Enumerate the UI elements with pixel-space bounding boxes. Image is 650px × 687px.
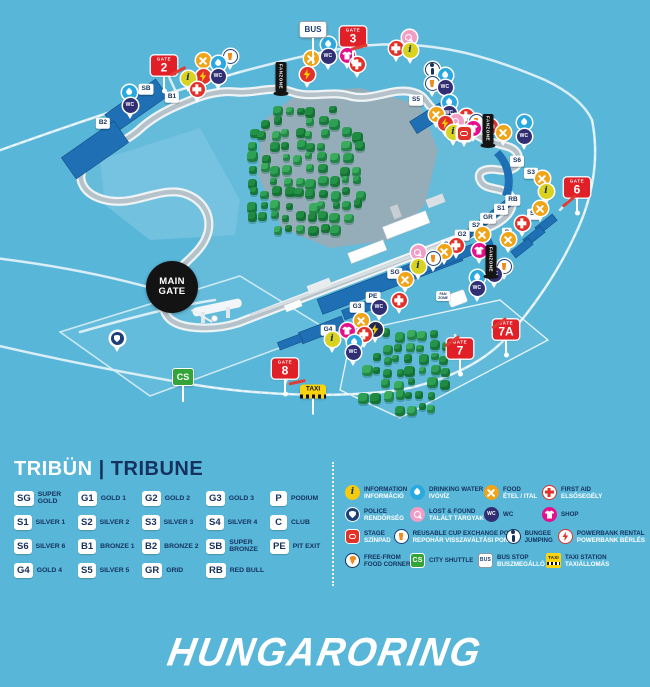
bungee-icon [506, 529, 521, 544]
service-label-hu: BUSZMEGÁLLÓ [497, 561, 545, 568]
tribune-label: BRONZE 2 [164, 543, 204, 550]
tribune-code-badge: B2 [142, 539, 160, 554]
tribune-code-badge: C [270, 515, 287, 530]
tribune-code-badge: G4 [14, 563, 33, 578]
service-item-firstaid_w: FIRST AIDELSŐSEGÉLY [542, 485, 602, 500]
service-label-en: FIRST AID [561, 486, 602, 493]
food-icon [484, 485, 499, 500]
cup-icon [394, 529, 409, 544]
service-label-hu: SZÍNPAD [364, 537, 391, 544]
service-label-en: REUSABLE CUP EXCHANGE POINT [413, 530, 519, 537]
service-label-en: LOST & FOUND [429, 508, 484, 515]
service-label: WC [503, 511, 513, 518]
gate-and-transport-signs: GATE2GATE3GATE6GATE7GATE7AGATE8BUSCSTAXI… [0, 0, 650, 452]
service-label: FREE-FROMFOOD CORNER [364, 554, 410, 568]
tribune-label: GOLD 2 [165, 495, 205, 502]
tribune-item-S3: S3SILVER 3 [142, 514, 206, 530]
legend: TRIBÜN | TRIBUNE SGSUPER GOLDS1SILVER 1S… [0, 452, 650, 620]
service-item-wc: WCWC [484, 507, 542, 522]
tribune-column: SGSUPER GOLDS1SILVER 1S6SILVER 6G4GOLD 4 [14, 490, 78, 578]
tribune-item-G1: G1GOLD 1 [78, 490, 142, 506]
gate-sign-6: GATE6 [564, 178, 590, 216]
tribune-column: G2GOLD 2S3SILVER 3B2BRONZE 2GRGRID [142, 490, 206, 578]
freefrom-icon [345, 553, 360, 568]
service-label-en: INFORMATION [364, 486, 407, 493]
tribune-item-S6: S6SILVER 6 [14, 538, 78, 554]
service-label-hu: ELSŐSEGÉLY [561, 493, 602, 500]
tribune-label: SILVER 5 [100, 567, 140, 574]
tribune-code-badge: S4 [206, 515, 224, 530]
tribune-label: GOLD 1 [101, 495, 141, 502]
tribune-code-badge: G2 [142, 491, 161, 506]
service-label-hu: JUMPING [525, 537, 553, 544]
tribune-code-badge: SG [14, 491, 34, 506]
taxi-sign: TAXI [300, 385, 326, 415]
service-item-taxi: TAXITAXI STATIONTAXIÁLLOMÁS [546, 553, 609, 568]
tribune-code-badge: SB [206, 539, 225, 554]
tribune-code-badge: S1 [14, 515, 32, 530]
service-label: DRINKING WATERIVÓVÍZ [429, 486, 483, 500]
service-item-bungee: BUNGEEJUMPING [506, 529, 558, 544]
service-label-hu: TAXIÁLLOMÁS [565, 561, 609, 568]
service-item-shop: SHOP [542, 507, 579, 522]
services-row: STAGESZÍNPADREUSABLE CUP EXCHANGE POINTR… [345, 529, 645, 544]
service-label: POLICERENDŐRSÉG [364, 508, 404, 522]
tribune-title: TRIBÜN | TRIBUNE [14, 458, 203, 481]
services-row: iINFORMATIONINFORMÁCIÓDRINKING WATERIVÓV… [345, 485, 645, 500]
tribune-label: GRID [166, 567, 206, 574]
footer: HUNGARORING [0, 620, 650, 687]
service-label-hu: ÉTEL / ITAL [503, 493, 537, 500]
service-label-en: STAGE [364, 530, 391, 537]
service-label-en: POLICE [364, 508, 404, 515]
bus-sign: BUS [299, 21, 327, 64]
fanzone-flag: FANZONE [274, 62, 289, 96]
service-item-bus: BUSBUS STOPBUSZMEGÁLLÓ [478, 553, 546, 568]
tribune-label: GOLD 3 [229, 495, 269, 502]
police-icon [345, 507, 360, 522]
firstaid_w-icon [542, 485, 557, 500]
tribune-grid: SGSUPER GOLDS1SILVER 1S6SILVER 6G4GOLD 4… [14, 490, 334, 578]
tribune-code-badge: PE [270, 539, 289, 554]
service-label-en: DRINKING WATER [429, 486, 483, 493]
water-icon [410, 485, 425, 500]
service-label-hu: POWERBANK BÉRLÉS [577, 537, 645, 544]
tribune-label: PODIUM [291, 495, 331, 502]
tribune-code-badge: RB [206, 563, 226, 578]
tribune-item-SB: SBSUPER BRONZE [206, 538, 270, 554]
service-item-powerbank_w: POWERBANK RENTALPOWERBANK BÉRLÉS [558, 529, 645, 544]
tribune-code-badge: S3 [142, 515, 160, 530]
wc-icon: WC [484, 507, 499, 522]
service-label: STAGESZÍNPAD [364, 530, 391, 544]
tribune-item-S5: S5SILVER 5 [78, 562, 142, 578]
service-label-hu: REPOHÁR VISSZAVÁLTÁSI PONT [413, 537, 519, 544]
tribune-label: CLUB [291, 519, 331, 526]
tribune-item-RB: RBRED BULL [206, 562, 270, 578]
service-label-en: BUNGEE [525, 530, 553, 537]
service-label: TAXI STATIONTAXIÁLLOMÁS [565, 554, 609, 568]
service-item-food: FOODÉTEL / ITAL [484, 485, 542, 500]
stage-icon [345, 529, 360, 544]
service-item-water: DRINKING WATERIVÓVÍZ [410, 485, 484, 500]
legend-separator [332, 462, 334, 586]
tribune-label: SILVER 4 [228, 519, 268, 526]
service-label-hu: INFORMÁCIÓ [364, 493, 407, 500]
tribune-label: PIT EXIT [293, 543, 333, 550]
service-label: FOODÉTEL / ITAL [503, 486, 537, 500]
service-label-en: SHOP [561, 511, 579, 518]
lostfound-icon [410, 507, 425, 522]
fanzone-flag: FANZONE [484, 245, 499, 279]
tribune-column: G3GOLD 3S4SILVER 4SBSUPER BRONZERBRED BU… [206, 490, 270, 578]
service-label: FIRST AIDELSŐSEGÉLY [561, 486, 602, 500]
main-gate-marker: MAINGATE [146, 261, 198, 313]
service-item-lostfound: LOST & FOUNDTALÁLT TÁRGYAK [410, 507, 484, 522]
fanzone-flag: FANZONE [481, 114, 496, 148]
service-label-hu: TALÁLT TÁRGYAK [429, 515, 484, 522]
tribune-label: RED BULL [230, 567, 270, 574]
tribune-item-G2: G2GOLD 2 [142, 490, 206, 506]
tribune-code-badge: S6 [14, 539, 32, 554]
bus-icon: BUS [478, 553, 493, 568]
tribune-column: PPODIUMCCLUBPEPIT EXIT [270, 490, 334, 578]
shop-icon [542, 507, 557, 522]
hungaroring-logo: HUNGARORING [164, 631, 485, 676]
tribune-label: BRONZE 1 [100, 543, 140, 550]
gate-sign-7: GATE7 [447, 339, 473, 377]
tribune-code-badge: B1 [78, 539, 96, 554]
gate-sign-8: GATE8 [272, 359, 298, 397]
service-item-cup: REUSABLE CUP EXCHANGE POINTREPOHÁR VISSZ… [394, 529, 506, 544]
tribune-label: SILVER 6 [36, 543, 76, 550]
service-label: REUSABLE CUP EXCHANGE POINTREPOHÁR VISSZ… [413, 530, 519, 544]
tribune-label: SUPER BRONZE [229, 539, 269, 553]
tribune-item-B2: B2BRONZE 2 [142, 538, 206, 554]
tribune-title-hu: TRIBÜN [14, 458, 93, 480]
tribune-label: SILVER 1 [36, 519, 76, 526]
service-label-en: CITY SHUTTLE [429, 557, 473, 564]
tribune-code-badge: G3 [206, 491, 225, 506]
service-label: LOST & FOUNDTALÁLT TÁRGYAK [429, 508, 484, 522]
tribune-title-en: TRIBUNE [111, 458, 203, 480]
service-item-freefrom: FREE-FROMFOOD CORNER [345, 553, 410, 568]
taxi-icon: TAXI [546, 553, 561, 568]
service-label: INFORMATIONINFORMÁCIÓ [364, 486, 407, 500]
service-item-police: POLICERENDŐRSÉG [345, 507, 410, 522]
circuit-map: SBB1B2S5S6S3RBS1GRS2G2G1S4CPSGPEG3G4 iWC… [0, 0, 650, 452]
information-icon: i [345, 485, 360, 500]
service-label-en: WC [503, 511, 513, 518]
service-label: CITY SHUTTLE [429, 557, 473, 564]
tribune-item-S4: S4SILVER 4 [206, 514, 270, 530]
tribune-item-GR: GRGRID [142, 562, 206, 578]
fan-zone-tent-label: FANZONE [436, 291, 450, 301]
tribune-item-PE: PEPIT EXIT [270, 538, 334, 554]
tribune-item-G3: G3GOLD 3 [206, 490, 270, 506]
services-legend: iINFORMATIONINFORMÁCIÓDRINKING WATERIVÓV… [345, 485, 645, 575]
service-label-en: FREE-FROM [364, 554, 410, 561]
tribune-item-B1: B1BRONZE 1 [78, 538, 142, 554]
tribune-code-badge: S5 [78, 563, 96, 578]
service-item-information: iINFORMATIONINFORMÁCIÓ [345, 485, 410, 500]
tribune-code-badge: P [270, 491, 287, 506]
service-label-en: BUS STOP [497, 554, 545, 561]
service-label-hu: FOOD CORNER [364, 561, 410, 568]
powerbank_w-icon [558, 529, 573, 544]
services-row: FREE-FROMFOOD CORNERCSCITY SHUTTLEBUSBUS… [345, 553, 645, 568]
tribune-code-badge: GR [142, 563, 162, 578]
cs-icon: CS [410, 553, 425, 568]
service-label-en: TAXI STATION [565, 554, 609, 561]
services-row: POLICERENDŐRSÉGLOST & FOUNDTALÁLT TÁRGYA… [345, 507, 645, 522]
tribune-label: SILVER 3 [164, 519, 204, 526]
tribune-item-S2: S2SILVER 2 [78, 514, 142, 530]
tribune-item-S1: S1SILVER 1 [14, 514, 78, 530]
service-label-hu: IVÓVÍZ [429, 493, 483, 500]
service-label-hu: RENDŐRSÉG [364, 515, 404, 522]
service-label: BUNGEEJUMPING [525, 530, 553, 544]
tribune-label: SILVER 2 [100, 519, 140, 526]
tribune-label: SUPER GOLD [38, 491, 78, 505]
tribune-column: G1GOLD 1S2SILVER 2B1BRONZE 1S5SILVER 5 [78, 490, 142, 578]
service-item-cs: CSCITY SHUTTLE [410, 553, 478, 568]
service-label-en: FOOD [503, 486, 537, 493]
service-label: BUS STOPBUSZMEGÁLLÓ [497, 554, 545, 568]
tribune-item-G4: G4GOLD 4 [14, 562, 78, 578]
tribune-label: GOLD 4 [37, 567, 77, 574]
tribune-code-badge: G1 [78, 491, 97, 506]
tribune-item-P: PPODIUM [270, 490, 334, 506]
city-shuttle-sign: CS [172, 368, 194, 402]
service-item-stage: STAGESZÍNPAD [345, 529, 394, 544]
tribune-title-divider: | [99, 458, 105, 480]
tribune-item-C: CCLUB [270, 514, 334, 530]
tribune-code-badge: S2 [78, 515, 96, 530]
tribune-item-SG: SGSUPER GOLD [14, 490, 78, 506]
service-label: POWERBANK RENTALPOWERBANK BÉRLÉS [577, 530, 645, 544]
service-label: SHOP [561, 511, 579, 518]
service-label-en: POWERBANK RENTAL [577, 530, 645, 537]
hungaroring-circuit-map-screen: SBB1B2S5S6S3RBS1GRS2G2G1S4CPSGPEG3G4 iWC… [0, 0, 650, 687]
